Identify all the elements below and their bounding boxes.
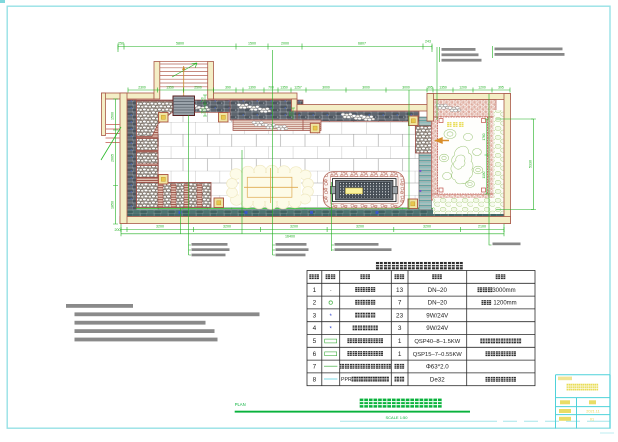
svg-text:3: 3: [313, 312, 317, 319]
svg-text:1: 1: [398, 338, 402, 345]
svg-text:1200mm: 1200mm: [493, 301, 516, 307]
svg-text:1350: 1350: [166, 86, 174, 90]
svg-text:4: 4: [313, 325, 317, 332]
svg-text:5800: 5800: [176, 42, 184, 46]
svg-text:1: 1: [313, 287, 317, 294]
svg-text:9W/24V: 9W/24V: [426, 312, 449, 319]
svg-text:2665: 2665: [111, 154, 115, 162]
svg-text:16400: 16400: [285, 235, 295, 239]
svg-text:7: 7: [313, 364, 317, 371]
svg-text:1390: 1390: [248, 86, 256, 90]
svg-text:2500: 2500: [194, 86, 202, 90]
svg-text:350: 350: [288, 111, 292, 117]
svg-text:3200: 3200: [290, 225, 298, 229]
svg-text:5: 5: [313, 338, 317, 345]
svg-text:1257: 1257: [294, 86, 302, 90]
svg-text:395: 395: [427, 86, 433, 90]
svg-text:1350: 1350: [439, 86, 447, 90]
svg-text:700: 700: [268, 86, 274, 90]
svg-text:1: 1: [398, 351, 402, 358]
svg-text:8: 8: [313, 376, 317, 383]
svg-text:2000: 2000: [281, 42, 289, 46]
svg-text:740: 740: [200, 97, 204, 103]
svg-text:243: 243: [425, 40, 431, 44]
svg-text:2300: 2300: [138, 86, 146, 90]
svg-text:QSP15–7–0.55KW: QSP15–7–0.55KW: [413, 352, 463, 358]
svg-text:3000: 3000: [402, 86, 410, 90]
svg-text:3000mm: 3000mm: [492, 288, 515, 294]
svg-text:9W/24V: 9W/24V: [426, 325, 449, 332]
svg-text:3000: 3000: [362, 86, 370, 90]
svg-text:1500: 1500: [111, 112, 115, 120]
svg-text:390: 390: [225, 86, 231, 90]
svg-text:1350: 1350: [280, 86, 288, 90]
svg-text:13: 13: [396, 287, 404, 294]
svg-text:3: 3: [398, 325, 402, 332]
svg-text:5330: 5330: [529, 160, 533, 168]
svg-text:1500: 1500: [248, 42, 256, 46]
svg-text:1850: 1850: [111, 201, 115, 209]
svg-text:250: 250: [118, 42, 124, 46]
svg-text:2: 2: [313, 300, 317, 307]
svg-text:DN–20: DN–20: [428, 287, 448, 294]
svg-text:SCALE 1:50: SCALE 1:50: [385, 415, 408, 420]
svg-text:200: 200: [115, 228, 121, 232]
svg-text:De32: De32: [430, 376, 445, 383]
svg-text:DN–20: DN–20: [428, 300, 448, 307]
svg-text:3200: 3200: [423, 225, 431, 229]
svg-text:1200: 1200: [459, 86, 467, 90]
svg-text:6807: 6807: [358, 42, 366, 46]
svg-text:2021.11: 2021.11: [586, 410, 599, 414]
svg-text:3000: 3000: [322, 86, 330, 90]
svg-text:3200: 3200: [156, 225, 164, 229]
svg-text:3200: 3200: [223, 225, 231, 229]
svg-text:PLAN: PLAN: [235, 402, 246, 407]
svg-text:23: 23: [396, 312, 404, 319]
svg-text:Φ63*2.0: Φ63*2.0: [426, 364, 449, 371]
svg-text:1200: 1200: [478, 86, 486, 90]
svg-text:1760: 1760: [482, 133, 486, 140]
svg-text:QSP40–8–1.5KW: QSP40–8–1.5KW: [414, 339, 460, 345]
svg-text:350: 350: [200, 108, 204, 114]
svg-text:PPR: PPR: [341, 377, 352, 383]
svg-text:01: 01: [590, 417, 594, 421]
svg-text:395: 395: [498, 86, 504, 90]
svg-text:7: 7: [398, 300, 402, 307]
svg-text:2100: 2100: [478, 225, 486, 229]
svg-text:6: 6: [313, 351, 317, 358]
svg-text:3200: 3200: [356, 225, 364, 229]
svg-text:1190: 1190: [482, 171, 486, 178]
